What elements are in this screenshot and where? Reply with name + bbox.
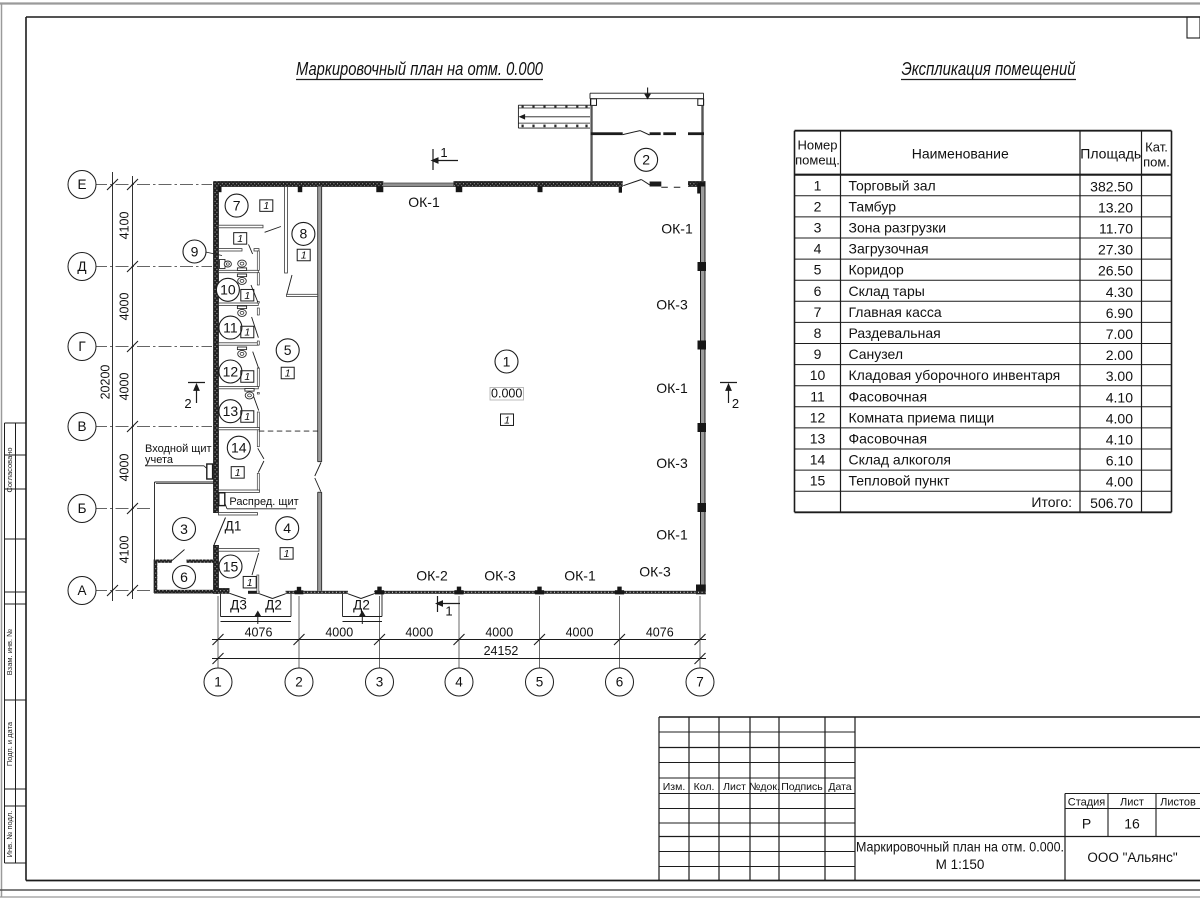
svg-text:Е: Е — [77, 177, 86, 192]
svg-text:Склад алкоголя: Склад алкоголя — [849, 452, 951, 468]
svg-text:15: 15 — [810, 473, 826, 489]
svg-text:ОК-1: ОК-1 — [661, 221, 693, 237]
svg-text:506.70: 506.70 — [1090, 495, 1133, 511]
svg-text:4076: 4076 — [245, 626, 273, 640]
svg-text:16: 16 — [1124, 816, 1140, 832]
svg-text:1: 1 — [237, 233, 243, 245]
svg-text:Итого:: Итого: — [1031, 494, 1072, 510]
svg-text:382.50: 382.50 — [1090, 178, 1133, 194]
svg-text:3: 3 — [814, 220, 822, 236]
svg-text:8: 8 — [814, 325, 822, 341]
svg-text:Лист: Лист — [723, 781, 746, 793]
svg-text:Согласовано: Согласовано — [5, 447, 14, 492]
svg-text:В: В — [77, 419, 86, 434]
svg-text:1: 1 — [504, 414, 510, 426]
svg-text:1: 1 — [214, 675, 222, 690]
svg-text:1: 1 — [244, 371, 250, 383]
svg-text:ООО "Альянс": ООО "Альянс" — [1087, 850, 1177, 865]
svg-text:4.00: 4.00 — [1106, 474, 1133, 490]
svg-text:20200: 20200 — [99, 365, 113, 400]
svg-text:ОК-3: ОК-3 — [484, 568, 516, 584]
svg-text:8: 8 — [300, 226, 308, 242]
svg-text:7.00: 7.00 — [1106, 326, 1133, 342]
svg-text:2: 2 — [642, 152, 650, 168]
svg-text:1: 1 — [244, 411, 250, 423]
svg-text:Дата: Дата — [828, 781, 851, 793]
svg-text:4000: 4000 — [405, 626, 433, 640]
svg-text:26.50: 26.50 — [1098, 263, 1133, 279]
svg-text:Санузел: Санузел — [849, 346, 904, 362]
svg-text:Подп. и дата: Подп. и дата — [5, 721, 14, 766]
svg-text:Торговый зал: Торговый зал — [849, 177, 936, 193]
svg-text:1: 1 — [263, 200, 269, 212]
svg-text:2: 2 — [295, 675, 303, 690]
svg-text:1: 1 — [503, 353, 511, 369]
svg-text:5: 5 — [284, 342, 292, 358]
svg-text:13: 13 — [810, 431, 826, 447]
svg-text:4.10: 4.10 — [1106, 432, 1133, 448]
svg-text:А: А — [77, 583, 86, 598]
svg-text:5: 5 — [536, 675, 544, 690]
svg-text:№док.: №док. — [749, 781, 780, 793]
svg-text:4076: 4076 — [646, 626, 674, 640]
svg-text:4000: 4000 — [485, 626, 513, 640]
svg-text:1: 1 — [301, 250, 307, 262]
svg-text:ОК-1: ОК-1 — [656, 380, 688, 396]
svg-text:4.10: 4.10 — [1106, 389, 1133, 405]
svg-text:24152: 24152 — [484, 644, 519, 658]
svg-text:Загрузочная: Загрузочная — [849, 241, 929, 257]
svg-text:3: 3 — [180, 521, 188, 537]
svg-text:14: 14 — [231, 439, 247, 455]
svg-text:Площадь: Площадь — [1080, 146, 1141, 162]
svg-text:Д3: Д3 — [230, 598, 247, 613]
svg-text:учета: учета — [145, 454, 174, 466]
svg-text:ОК-1: ОК-1 — [656, 527, 688, 543]
svg-text:Склад тары: Склад тары — [849, 283, 925, 299]
svg-text:1: 1 — [247, 577, 253, 589]
svg-text:2.00: 2.00 — [1106, 347, 1133, 363]
svg-text:Инв. № подл.: Инв. № подл. — [5, 811, 14, 858]
svg-text:ОК-1: ОК-1 — [564, 568, 596, 584]
svg-text:Взам. инв. №: Взам. инв. № — [5, 629, 14, 675]
svg-text:Зона разгрузки: Зона разгрузки — [849, 220, 947, 236]
svg-text:1: 1 — [440, 145, 447, 160]
svg-text:6: 6 — [814, 283, 822, 299]
svg-text:4100: 4100 — [118, 212, 132, 240]
svg-text:4000: 4000 — [118, 454, 132, 482]
svg-text:11.70: 11.70 — [1099, 221, 1133, 237]
svg-text:Маркировочный план на отм. 0.0: Маркировочный план на отм. 0.000. — [856, 840, 1064, 855]
svg-text:1: 1 — [284, 548, 290, 560]
svg-text:1: 1 — [244, 327, 250, 339]
svg-text:М 1:150: М 1:150 — [936, 857, 985, 872]
svg-text:6.90: 6.90 — [1106, 305, 1133, 321]
svg-text:4000: 4000 — [325, 626, 353, 640]
svg-text:27.30: 27.30 — [1098, 242, 1133, 258]
svg-text:7: 7 — [814, 304, 822, 320]
svg-text:4: 4 — [283, 520, 291, 536]
svg-text:9: 9 — [814, 346, 822, 362]
svg-text:10: 10 — [810, 367, 826, 383]
svg-text:Д2: Д2 — [353, 598, 370, 613]
svg-text:Кол.: Кол. — [694, 781, 715, 793]
svg-text:2: 2 — [184, 396, 191, 411]
svg-text:Д: Д — [77, 259, 86, 274]
svg-text:Б: Б — [78, 501, 87, 516]
svg-text:Экспликация помещений: Экспликация помещений — [902, 58, 1076, 79]
svg-text:1: 1 — [235, 467, 241, 479]
svg-text:Коридор: Коридор — [849, 262, 905, 278]
svg-text:1: 1 — [445, 604, 452, 619]
svg-text:7: 7 — [696, 675, 704, 690]
svg-text:Кат.: Кат. — [1145, 140, 1168, 155]
svg-text:7: 7 — [233, 197, 241, 213]
svg-text:Тамбур: Тамбур — [849, 198, 897, 214]
svg-text:ОК-1: ОК-1 — [408, 194, 440, 210]
svg-text:ОК-3: ОК-3 — [656, 297, 688, 313]
svg-text:Лист: Лист — [1120, 797, 1144, 809]
svg-text:2: 2 — [732, 396, 739, 411]
svg-text:11: 11 — [810, 388, 825, 404]
svg-text:пом.: пом. — [1143, 155, 1170, 170]
svg-text:Фасовочная: Фасовочная — [849, 388, 928, 404]
svg-text:ОК-3: ОК-3 — [639, 564, 671, 580]
svg-text:Д1: Д1 — [225, 519, 242, 534]
svg-text:6.10: 6.10 — [1106, 453, 1133, 469]
svg-text:помещ.: помещ. — [795, 153, 840, 168]
svg-text:1: 1 — [244, 290, 250, 302]
svg-text:Изм.: Изм. — [663, 781, 686, 793]
svg-text:ОК-2: ОК-2 — [416, 568, 448, 584]
svg-text:4: 4 — [455, 675, 463, 690]
svg-text:Р: Р — [1082, 816, 1091, 832]
svg-text:4000: 4000 — [118, 293, 132, 321]
svg-text:Д2: Д2 — [265, 598, 282, 613]
svg-text:13: 13 — [223, 403, 239, 419]
svg-text:14: 14 — [810, 452, 826, 468]
svg-text:4: 4 — [814, 241, 822, 257]
svg-text:Кладовая уборочного инвентаря: Кладовая уборочного инвентаря — [849, 367, 1061, 383]
svg-text:13.20: 13.20 — [1098, 199, 1133, 215]
svg-text:Главная касса: Главная касса — [849, 304, 942, 320]
svg-text:Комната приема пищи: Комната приема пищи — [849, 409, 995, 425]
svg-text:Стадия: Стадия — [1068, 797, 1106, 809]
svg-text:12: 12 — [223, 363, 239, 379]
svg-text:Маркировочный план на отм. 0.0: Маркировочный план на отм. 0.000 — [296, 58, 544, 79]
svg-text:Фасовочная: Фасовочная — [849, 431, 928, 447]
svg-text:4000: 4000 — [118, 373, 132, 401]
svg-text:Листов: Листов — [1160, 797, 1196, 809]
svg-text:6: 6 — [180, 569, 188, 585]
svg-text:4.30: 4.30 — [1106, 284, 1133, 300]
svg-text:3.00: 3.00 — [1106, 368, 1133, 384]
svg-text:0.000: 0.000 — [491, 387, 522, 401]
svg-text:12: 12 — [810, 409, 826, 425]
svg-text:1: 1 — [285, 368, 291, 380]
svg-text:15: 15 — [223, 558, 239, 574]
svg-text:4000: 4000 — [566, 626, 594, 640]
svg-text:4100: 4100 — [118, 536, 132, 564]
svg-text:3: 3 — [376, 675, 384, 690]
svg-text:1: 1 — [814, 177, 822, 193]
svg-text:5: 5 — [814, 262, 822, 278]
svg-text:Раздевальная: Раздевальная — [849, 325, 941, 341]
svg-text:Номер: Номер — [797, 138, 837, 153]
svg-text:6: 6 — [616, 675, 624, 690]
svg-text:Г: Г — [78, 339, 86, 354]
svg-text:9: 9 — [191, 243, 199, 259]
svg-text:Наименование: Наименование — [912, 146, 1009, 162]
svg-text:4.00: 4.00 — [1106, 410, 1133, 426]
svg-text:Подпись: Подпись — [781, 781, 823, 793]
svg-text:ОК-3: ОК-3 — [656, 455, 688, 471]
svg-text:11: 11 — [223, 319, 238, 335]
svg-text:2: 2 — [814, 198, 822, 214]
svg-text:Распред. щит: Распред. щит — [229, 496, 298, 508]
svg-text:10: 10 — [220, 282, 236, 298]
svg-text:Тепловой пункт: Тепловой пункт — [849, 473, 951, 489]
